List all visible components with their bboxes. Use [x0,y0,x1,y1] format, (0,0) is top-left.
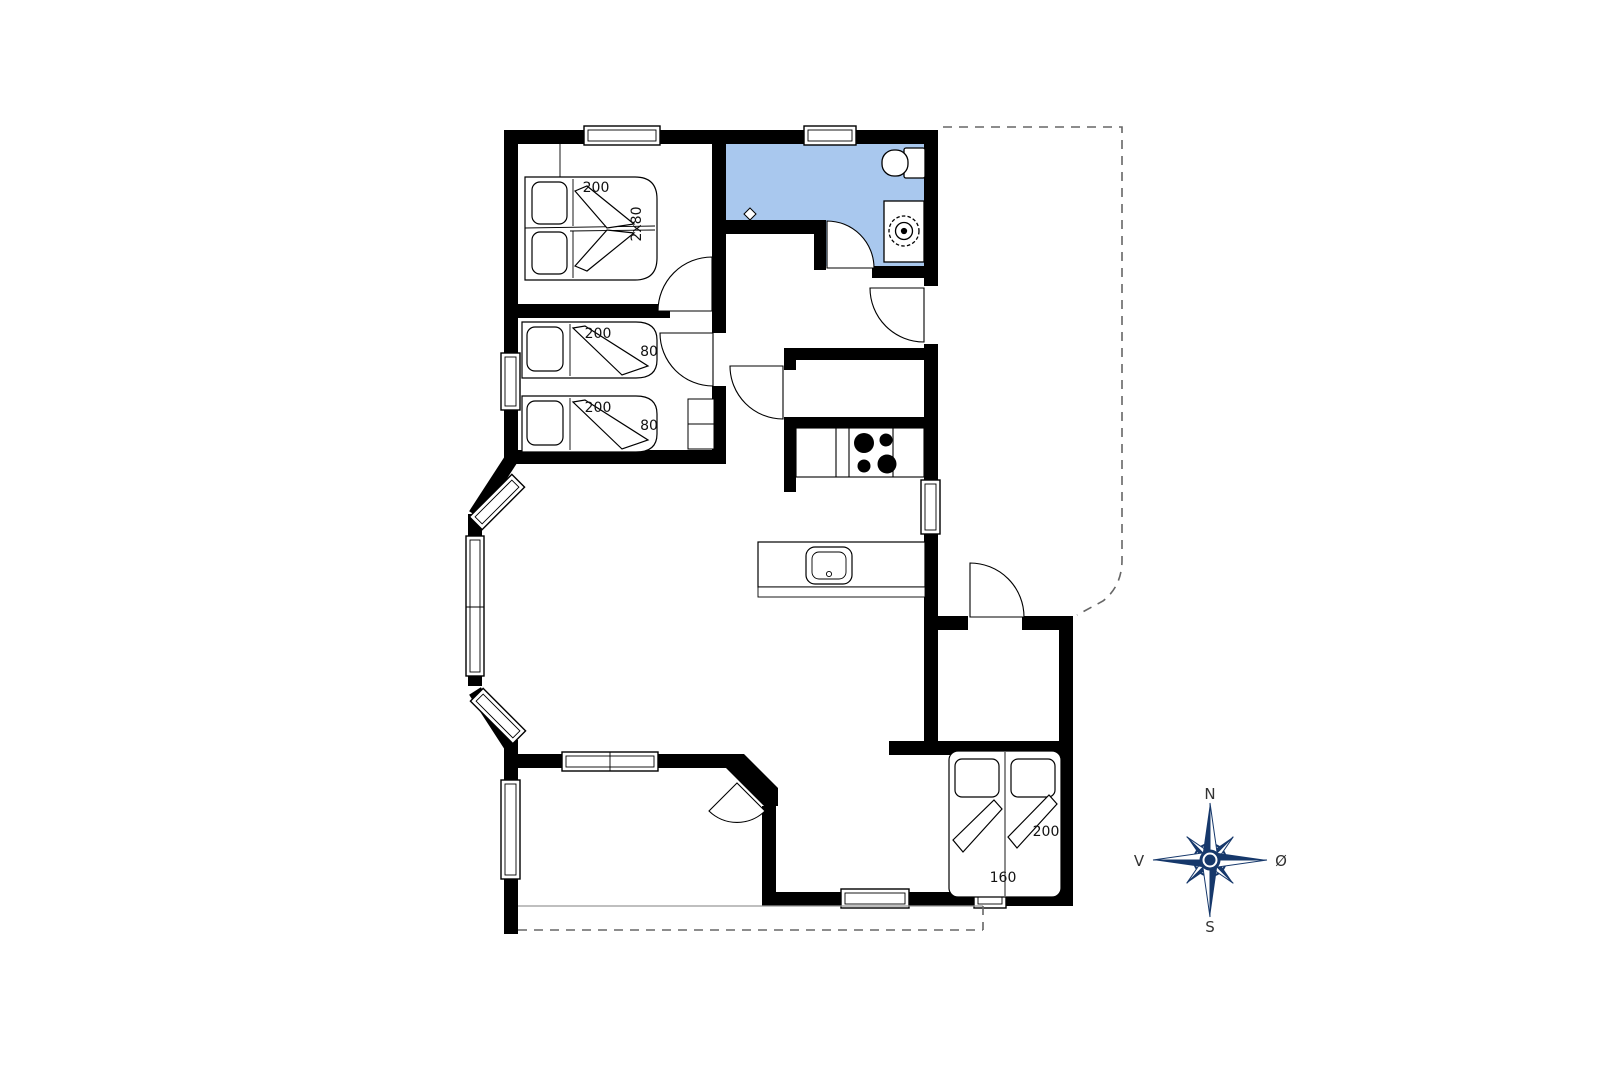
door-arc-kitchen [730,366,783,419]
pillow [1011,759,1055,797]
wall-counter-back [796,417,924,428]
bedroom1-bed-width-label: 2x80 [629,206,645,241]
pillow [527,327,563,371]
bedroom3-bed-width-label: 160 [990,870,1017,886]
kitchen-island [758,542,925,597]
wall-kitchen-north [784,348,924,360]
window-icon-living-south [841,889,909,908]
compass-arms [1153,803,1267,917]
bedroom2-bed1-length-label: 200 [585,326,612,342]
window-icon-entrance-north [562,752,658,771]
compass-east-label: Ø [1275,852,1287,870]
bedroom2-bed2-width-label: 80 [640,418,658,434]
bedroom3-bed-length-label: 200 [1033,824,1060,840]
compass-west-label: V [1134,852,1145,870]
window-icon-bay-vertical [466,536,484,676]
wall-bedroom1-south [504,304,670,318]
opening-terrace-door [924,286,938,344]
compass-rose: N S V Ø [1134,785,1287,936]
pillow [955,759,999,797]
wall-bathroom-south-right [872,266,924,278]
bedroom2-bed1-width-label: 80 [640,344,658,360]
toilet-icon [882,148,925,178]
terrace-dashed-outline [943,127,1122,615]
wall-bathroom-south-left [712,220,814,234]
bedroom1-bed-length-label: 200 [583,180,610,196]
window-icon-kitchen-east [921,480,940,534]
wall-kitchen-stub [784,348,796,370]
compass-south-label: S [1205,918,1215,936]
window-icon-bedroom2-west [501,353,520,410]
pillow [532,182,567,224]
island-sink-icon [806,547,852,584]
wall-kitchen-west [784,417,796,492]
wall-bedroom2-east-upper [712,318,726,333]
pillow [532,232,567,274]
pillow [527,401,563,445]
porch-dashed-outline [518,906,983,930]
door-arc-entry [970,563,1024,617]
door-arc-bedroom2 [660,333,713,386]
wall-west-upper [504,130,518,464]
compass-north-label: N [1204,785,1215,803]
window-icon-entrance-west [501,780,520,879]
bedroom2-bed2-length-label: 200 [585,400,612,416]
kitchen [758,428,925,597]
opening-entry-door [968,616,1022,630]
wall-entrance-east [762,806,776,906]
window-icon-bedroom1-north [584,126,660,145]
shelf [688,399,714,449]
floor-plan-page: 200 2x80 200 80 200 80 200 160 [0,0,1600,1066]
wall-top [504,130,938,144]
door-arc-terrace [870,288,924,342]
bathroom-sink-icon [884,201,924,262]
floor-plan-svg: 200 2x80 200 80 200 80 200 160 [0,0,1600,1066]
door-arc-bedroom1 [658,257,712,311]
wall-bathroom-step [814,220,826,270]
wall-east-main [924,130,938,755]
window-icon-bathroom-north [804,126,856,145]
